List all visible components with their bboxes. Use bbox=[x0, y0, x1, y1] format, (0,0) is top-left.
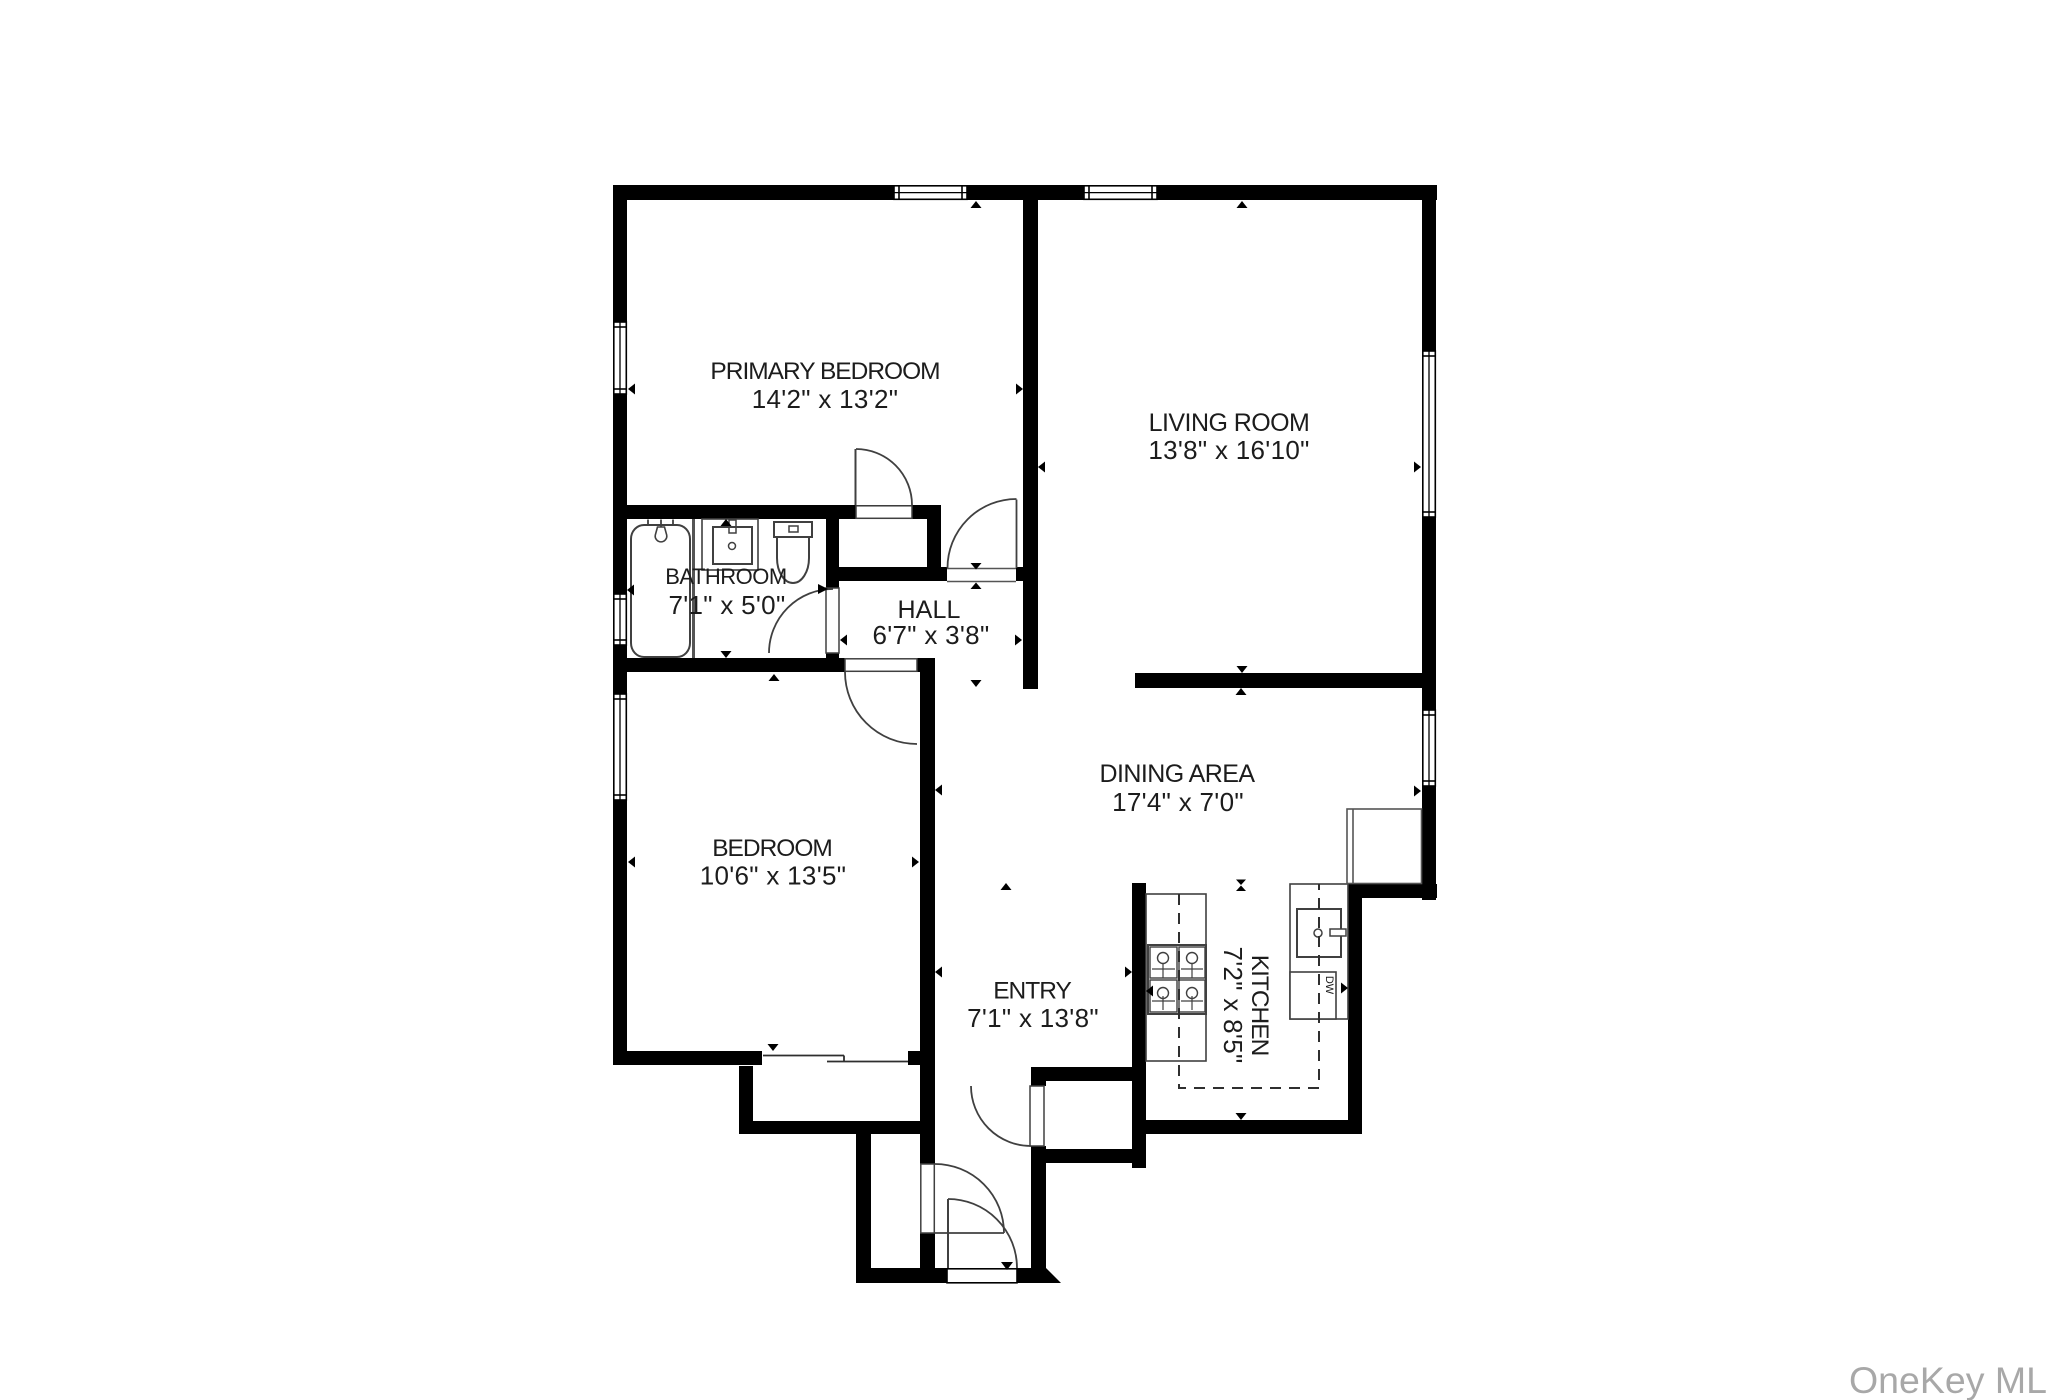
svg-text:LIVING ROOM: LIVING ROOM bbox=[1149, 409, 1310, 437]
svg-text:14'2" x 13'2": 14'2" x 13'2" bbox=[752, 384, 899, 414]
svg-text:10'6" x 13'5": 10'6" x 13'5" bbox=[700, 861, 847, 891]
svg-text:17'4" x 7'0": 17'4" x 7'0" bbox=[1112, 787, 1244, 817]
svg-text:7'1" x 5'0": 7'1" x 5'0" bbox=[669, 590, 786, 620]
svg-text:DW: DW bbox=[1323, 976, 1335, 995]
svg-text:13'8" x 16'10": 13'8" x 16'10" bbox=[1148, 435, 1309, 465]
svg-text:PRIMARY BEDROOM: PRIMARY BEDROOM bbox=[710, 358, 939, 385]
svg-text:7'1" x 13'8": 7'1" x 13'8" bbox=[967, 1003, 1099, 1033]
svg-text:BEDROOM: BEDROOM bbox=[712, 835, 832, 862]
svg-text:KITCHEN: KITCHEN bbox=[1246, 955, 1273, 1056]
svg-text:6'7" x 3'8": 6'7" x 3'8" bbox=[873, 620, 990, 650]
svg-text:OneKey MLS: OneKey MLS bbox=[1849, 1359, 2048, 1400]
svg-text:7'2" x 8'5": 7'2" x 8'5" bbox=[1218, 947, 1248, 1064]
svg-text:BATHROOM: BATHROOM bbox=[665, 564, 786, 589]
svg-text:ENTRY: ENTRY bbox=[993, 978, 1071, 1005]
svg-text:DINING AREA: DINING AREA bbox=[1099, 760, 1255, 788]
